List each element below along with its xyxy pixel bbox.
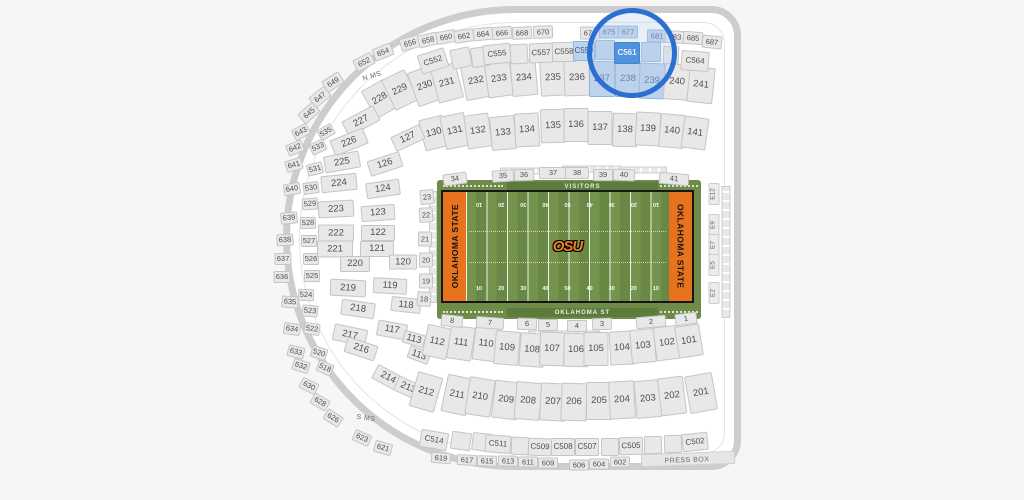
section-107[interactable]: 107 bbox=[539, 332, 565, 367]
suite-boxes-strip bbox=[722, 186, 731, 318]
section-134[interactable]: 134 bbox=[514, 112, 541, 147]
section-626[interactable]: 626 bbox=[322, 408, 344, 428]
yard-number: 20 bbox=[631, 286, 637, 292]
section-38[interactable]: 38 bbox=[565, 167, 589, 179]
section-40[interactable]: 40 bbox=[613, 169, 635, 182]
section-662[interactable]: 662 bbox=[453, 28, 475, 44]
section-E7[interactable]: E7 bbox=[709, 234, 720, 256]
yard-number: 40 bbox=[587, 202, 593, 208]
yard-numbers-bottom: 102030405040302010 bbox=[468, 285, 667, 292]
section-19[interactable]: 19 bbox=[419, 274, 433, 289]
yard-number: 30 bbox=[520, 202, 526, 208]
field-dotted-line bbox=[443, 311, 503, 313]
section-609[interactable]: 609 bbox=[538, 458, 558, 469]
section-blank[interactable] bbox=[664, 435, 683, 454]
section-635[interactable]: 635 bbox=[281, 295, 299, 308]
yard-number: 40 bbox=[542, 202, 548, 208]
endzone-west: OKLAHOMA STATE bbox=[443, 192, 466, 301]
yard-number: 20 bbox=[498, 286, 504, 292]
section-135[interactable]: 135 bbox=[540, 109, 566, 144]
section-223[interactable]: 223 bbox=[318, 200, 355, 219]
hash-marks-upper bbox=[469, 231, 666, 232]
section-604[interactable]: 604 bbox=[589, 459, 609, 470]
section-525[interactable]: 525 bbox=[304, 270, 320, 282]
section-638[interactable]: 638 bbox=[276, 234, 294, 247]
section-137[interactable]: 137 bbox=[588, 111, 613, 145]
field-area: VISITORS OKLAHOMA STATE 1020304050403020… bbox=[437, 180, 701, 319]
section-119[interactable]: 119 bbox=[373, 277, 408, 295]
section-634[interactable]: 634 bbox=[283, 322, 302, 336]
section-blank[interactable] bbox=[601, 438, 619, 456]
yard-number: 20 bbox=[498, 202, 504, 208]
section-208[interactable]: 208 bbox=[513, 381, 542, 421]
section-668[interactable]: 668 bbox=[512, 26, 533, 40]
yard-number: 50 bbox=[564, 286, 570, 292]
section-3[interactable]: 3 bbox=[592, 318, 612, 331]
section-105[interactable]: 105 bbox=[584, 332, 609, 366]
yard-number: 40 bbox=[542, 286, 548, 292]
section-666[interactable]: 666 bbox=[491, 26, 512, 41]
section-687[interactable]: 687 bbox=[701, 34, 722, 49]
section-529[interactable]: 529 bbox=[302, 197, 319, 210]
section-615[interactable]: 615 bbox=[477, 455, 497, 467]
yard-number: 10 bbox=[653, 202, 659, 208]
section-E9[interactable]: E9 bbox=[709, 214, 720, 236]
yard-number: 30 bbox=[520, 286, 526, 292]
yard-number: 10 bbox=[653, 286, 659, 292]
section-136[interactable]: 136 bbox=[564, 108, 589, 142]
section-41[interactable]: 41 bbox=[659, 172, 690, 187]
section-36[interactable]: 36 bbox=[514, 169, 534, 182]
section-5[interactable]: 5 bbox=[538, 319, 558, 331]
section-611[interactable]: 611 bbox=[518, 457, 538, 468]
section-530[interactable]: 530 bbox=[302, 181, 320, 195]
yard-number: 30 bbox=[609, 286, 615, 292]
seatmap-canvas: VISITORS OKLAHOMA STATE 1020304050403020… bbox=[0, 0, 1024, 500]
section-4[interactable]: 4 bbox=[567, 320, 587, 332]
section-7[interactable]: 7 bbox=[476, 316, 505, 330]
playing-surface: 102030405040302010 OSU 10203040504030201… bbox=[466, 192, 669, 301]
section-528[interactable]: 528 bbox=[300, 217, 316, 230]
section-E12[interactable]: E12 bbox=[709, 183, 720, 205]
section-6[interactable]: 6 bbox=[517, 318, 537, 331]
section-101[interactable]: 101 bbox=[674, 323, 704, 359]
section-22[interactable]: 22 bbox=[419, 207, 434, 223]
section-20[interactable]: 20 bbox=[419, 253, 433, 268]
section-234[interactable]: 234 bbox=[509, 59, 538, 97]
section-blank[interactable] bbox=[509, 44, 528, 65]
section-613[interactable]: 613 bbox=[498, 455, 518, 466]
section-C502[interactable]: C502 bbox=[681, 432, 709, 453]
section-139[interactable]: 139 bbox=[635, 111, 662, 146]
section-133[interactable]: 133 bbox=[489, 115, 517, 151]
section-blank[interactable] bbox=[644, 436, 662, 454]
section-206[interactable]: 206 bbox=[560, 383, 587, 422]
section-636[interactable]: 636 bbox=[274, 271, 291, 283]
osu-center-logo: OSU bbox=[553, 237, 583, 254]
section-527[interactable]: 527 bbox=[301, 235, 317, 247]
section-C505[interactable]: C505 bbox=[619, 437, 644, 456]
section-664[interactable]: 664 bbox=[472, 26, 493, 41]
section-120[interactable]: 120 bbox=[389, 255, 417, 270]
visitors-label: VISITORS bbox=[565, 184, 601, 190]
section-E5[interactable]: E5 bbox=[709, 254, 720, 276]
section-523[interactable]: 523 bbox=[302, 304, 319, 317]
endzone-east: OKLAHOMA STATE bbox=[669, 192, 692, 301]
section-21[interactable]: 21 bbox=[418, 232, 432, 247]
section-C509[interactable]: C509 bbox=[528, 438, 553, 457]
section-632[interactable]: 632 bbox=[291, 358, 311, 375]
section-C507[interactable]: C507 bbox=[575, 438, 599, 456]
section-123[interactable]: 123 bbox=[360, 204, 395, 222]
hash-marks-lower bbox=[469, 262, 666, 263]
label-press-box: PRESS BOX bbox=[657, 454, 717, 466]
yard-number: 40 bbox=[587, 286, 593, 292]
football-field: OKLAHOMA STATE 102030405040302010 OSU 10… bbox=[441, 190, 694, 303]
section-621[interactable]: 621 bbox=[373, 440, 394, 456]
section-202[interactable]: 202 bbox=[657, 376, 687, 417]
zoom-highlight-circle bbox=[587, 8, 677, 98]
section-E2[interactable]: E2 bbox=[709, 282, 720, 304]
home-sideline-label: OKLAHOMA ST bbox=[555, 310, 610, 316]
yard-number: 10 bbox=[476, 202, 482, 208]
section-637[interactable]: 637 bbox=[275, 253, 292, 265]
section-8[interactable]: 8 bbox=[440, 314, 463, 328]
section-619[interactable]: 619 bbox=[431, 452, 452, 465]
section-670[interactable]: 670 bbox=[533, 25, 553, 39]
section-141[interactable]: 141 bbox=[680, 115, 709, 150]
section-C564[interactable]: C564 bbox=[680, 50, 709, 72]
section-37[interactable]: 37 bbox=[539, 167, 567, 179]
section-221[interactable]: 221 bbox=[317, 241, 353, 258]
endzone-east-text: OKLAHOMA STATE bbox=[676, 204, 686, 288]
home-sideline-bar: OKLAHOMA ST bbox=[507, 308, 658, 317]
section-236[interactable]: 236 bbox=[563, 60, 590, 97]
section-blank[interactable] bbox=[450, 431, 472, 452]
section-524[interactable]: 524 bbox=[298, 289, 314, 302]
section-623[interactable]: 623 bbox=[351, 429, 372, 447]
section-35[interactable]: 35 bbox=[492, 169, 515, 183]
section-39[interactable]: 39 bbox=[593, 169, 613, 181]
endzone-west-text: OKLAHOMA STATE bbox=[450, 204, 460, 288]
section-617[interactable]: 617 bbox=[457, 454, 478, 466]
section-685[interactable]: 685 bbox=[683, 31, 704, 45]
section-18[interactable]: 18 bbox=[416, 291, 431, 307]
section-602[interactable]: 602 bbox=[610, 457, 630, 468]
yard-number: 30 bbox=[609, 202, 615, 208]
section-639[interactable]: 639 bbox=[280, 211, 298, 224]
section-C555[interactable]: C555 bbox=[482, 43, 512, 66]
section-219[interactable]: 219 bbox=[330, 279, 367, 298]
yard-number: 50 bbox=[564, 202, 570, 208]
section-23[interactable]: 23 bbox=[419, 189, 434, 205]
section-606[interactable]: 606 bbox=[569, 460, 589, 471]
section-522[interactable]: 522 bbox=[303, 322, 321, 336]
section-222[interactable]: 222 bbox=[318, 225, 354, 242]
section-204[interactable]: 204 bbox=[608, 380, 636, 419]
yard-numbers-top: 102030405040302010 bbox=[468, 201, 667, 208]
section-122[interactable]: 122 bbox=[361, 225, 395, 241]
section-C508[interactable]: C508 bbox=[551, 438, 575, 456]
section-C557[interactable]: C557 bbox=[529, 43, 554, 64]
section-C511[interactable]: C511 bbox=[484, 434, 511, 454]
section-109[interactable]: 109 bbox=[493, 330, 521, 366]
section-220[interactable]: 220 bbox=[340, 256, 370, 272]
section-241[interactable]: 241 bbox=[686, 66, 716, 105]
yard-number: 10 bbox=[476, 286, 482, 292]
section-blank[interactable] bbox=[511, 437, 530, 456]
yard-number: 20 bbox=[631, 202, 637, 208]
